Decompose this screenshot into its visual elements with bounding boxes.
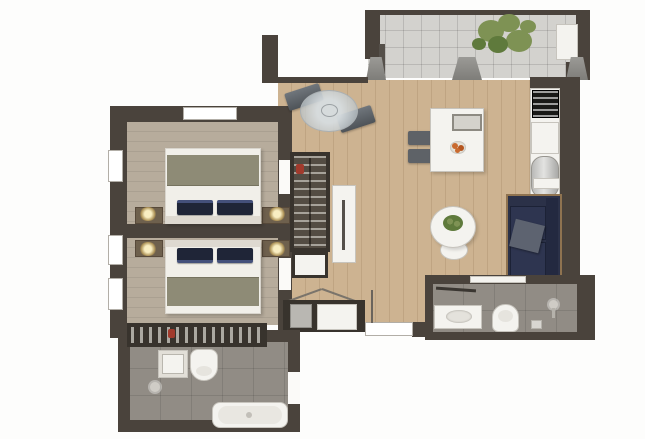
window	[108, 150, 123, 182]
terrace-storage-unit	[556, 24, 578, 60]
cabinet-tray	[290, 304, 312, 328]
window	[183, 107, 237, 120]
fruit	[455, 148, 460, 153]
bedroom-2-door-opening	[279, 258, 291, 290]
bed-pillow	[217, 200, 253, 215]
cabinet-panel	[317, 304, 357, 330]
bedroom-divider-wall	[110, 224, 292, 238]
entry-wall-stub	[262, 35, 278, 82]
counter-items	[131, 327, 263, 343]
plant-leaf	[506, 30, 532, 52]
side-shelf	[533, 178, 560, 189]
cooktop	[532, 90, 559, 118]
hanging-garment	[296, 164, 304, 174]
table-lamp	[139, 207, 157, 221]
plant-leaf	[488, 36, 508, 53]
kitchen-sink-unit	[531, 156, 559, 198]
table-lamp	[268, 242, 286, 256]
terrace-top-wall	[365, 10, 587, 15]
bed-headboard	[166, 240, 260, 247]
bed-pillow	[177, 248, 213, 263]
bed-headboard	[166, 216, 260, 224]
wardrobe-shelf	[292, 252, 328, 278]
table-lamp	[268, 207, 286, 221]
dining-chair	[408, 131, 432, 145]
sideboard-handle	[342, 200, 345, 250]
counter-red-item	[168, 329, 175, 338]
table-lamp	[139, 242, 157, 256]
bed-blanket	[167, 155, 259, 186]
bath-mat	[531, 320, 542, 329]
vanity-basin	[158, 350, 188, 378]
shower-fixture	[150, 382, 160, 392]
toilet-bowl	[498, 310, 513, 322]
kitchen-corner-wall	[530, 77, 580, 88]
toilet	[190, 349, 218, 381]
entrance-door-opening	[365, 322, 413, 336]
table-plant	[443, 215, 463, 231]
terrace-left-wall	[365, 10, 380, 59]
plant-leaf	[520, 20, 536, 33]
kitchen-cabinet-front	[531, 122, 559, 154]
plant-leaf	[472, 38, 486, 50]
bathroom-1-door-opening	[288, 372, 300, 404]
toilet-bowl	[196, 366, 212, 376]
floor-plan	[0, 0, 645, 439]
sofa-backrest	[546, 198, 558, 280]
dining-chair	[408, 149, 432, 163]
shower-stem	[552, 308, 555, 318]
bed-pillow	[217, 248, 253, 263]
glass-table-center	[321, 104, 338, 117]
bed-blanket	[167, 277, 259, 306]
bed-pillow	[177, 200, 213, 215]
open-door-leaf	[371, 290, 373, 323]
living-right-wall	[560, 77, 580, 277]
basin-bowl	[446, 310, 472, 323]
window	[108, 235, 123, 265]
bathtub-drain	[246, 412, 252, 418]
living-top-wall	[262, 77, 368, 83]
bathroom-2-door-ledge	[470, 276, 526, 283]
window	[108, 278, 123, 310]
serving-tray	[452, 114, 482, 131]
